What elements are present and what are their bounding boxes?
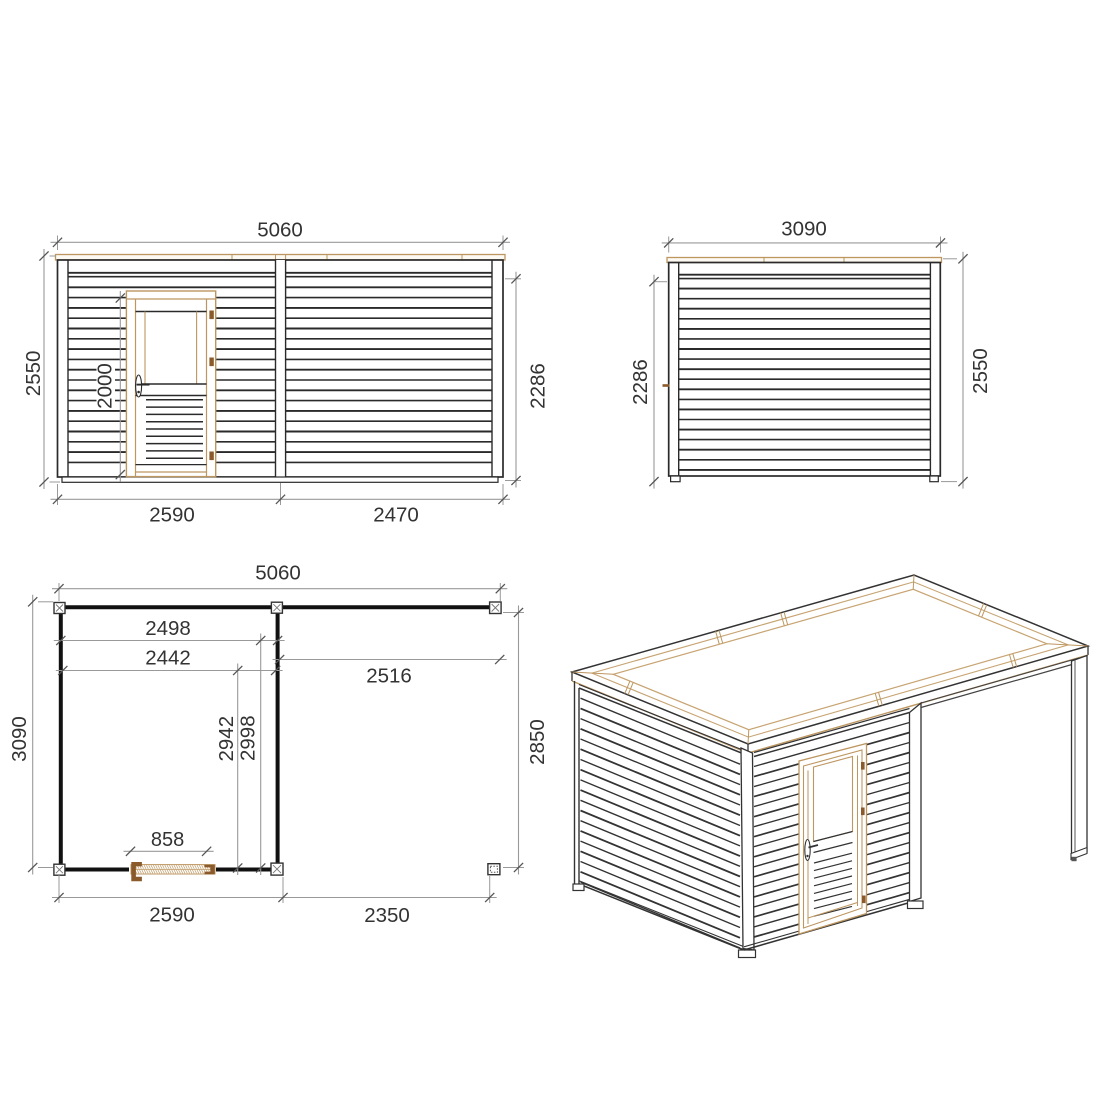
svg-text:2286: 2286 <box>629 359 652 405</box>
svg-text:2498: 2498 <box>145 617 191 640</box>
svg-text:3090: 3090 <box>8 716 31 762</box>
svg-text:2286: 2286 <box>527 363 550 409</box>
svg-text:2350: 2350 <box>364 904 410 927</box>
svg-text:2590: 2590 <box>149 504 195 527</box>
svg-text:2550: 2550 <box>22 351 45 397</box>
svg-text:2516: 2516 <box>366 665 412 688</box>
svg-text:2000: 2000 <box>94 363 117 409</box>
svg-text:5060: 5060 <box>255 562 301 585</box>
svg-text:2550: 2550 <box>969 348 992 394</box>
svg-text:2942: 2942 <box>215 716 238 762</box>
svg-text:5060: 5060 <box>257 219 303 242</box>
svg-text:2442: 2442 <box>145 647 191 670</box>
svg-text:3090: 3090 <box>781 218 827 241</box>
svg-text:2590: 2590 <box>149 904 195 927</box>
svg-text:2850: 2850 <box>526 719 549 765</box>
svg-text:2470: 2470 <box>373 504 419 527</box>
svg-text:2998: 2998 <box>237 715 260 761</box>
svg-text:858: 858 <box>151 829 184 851</box>
